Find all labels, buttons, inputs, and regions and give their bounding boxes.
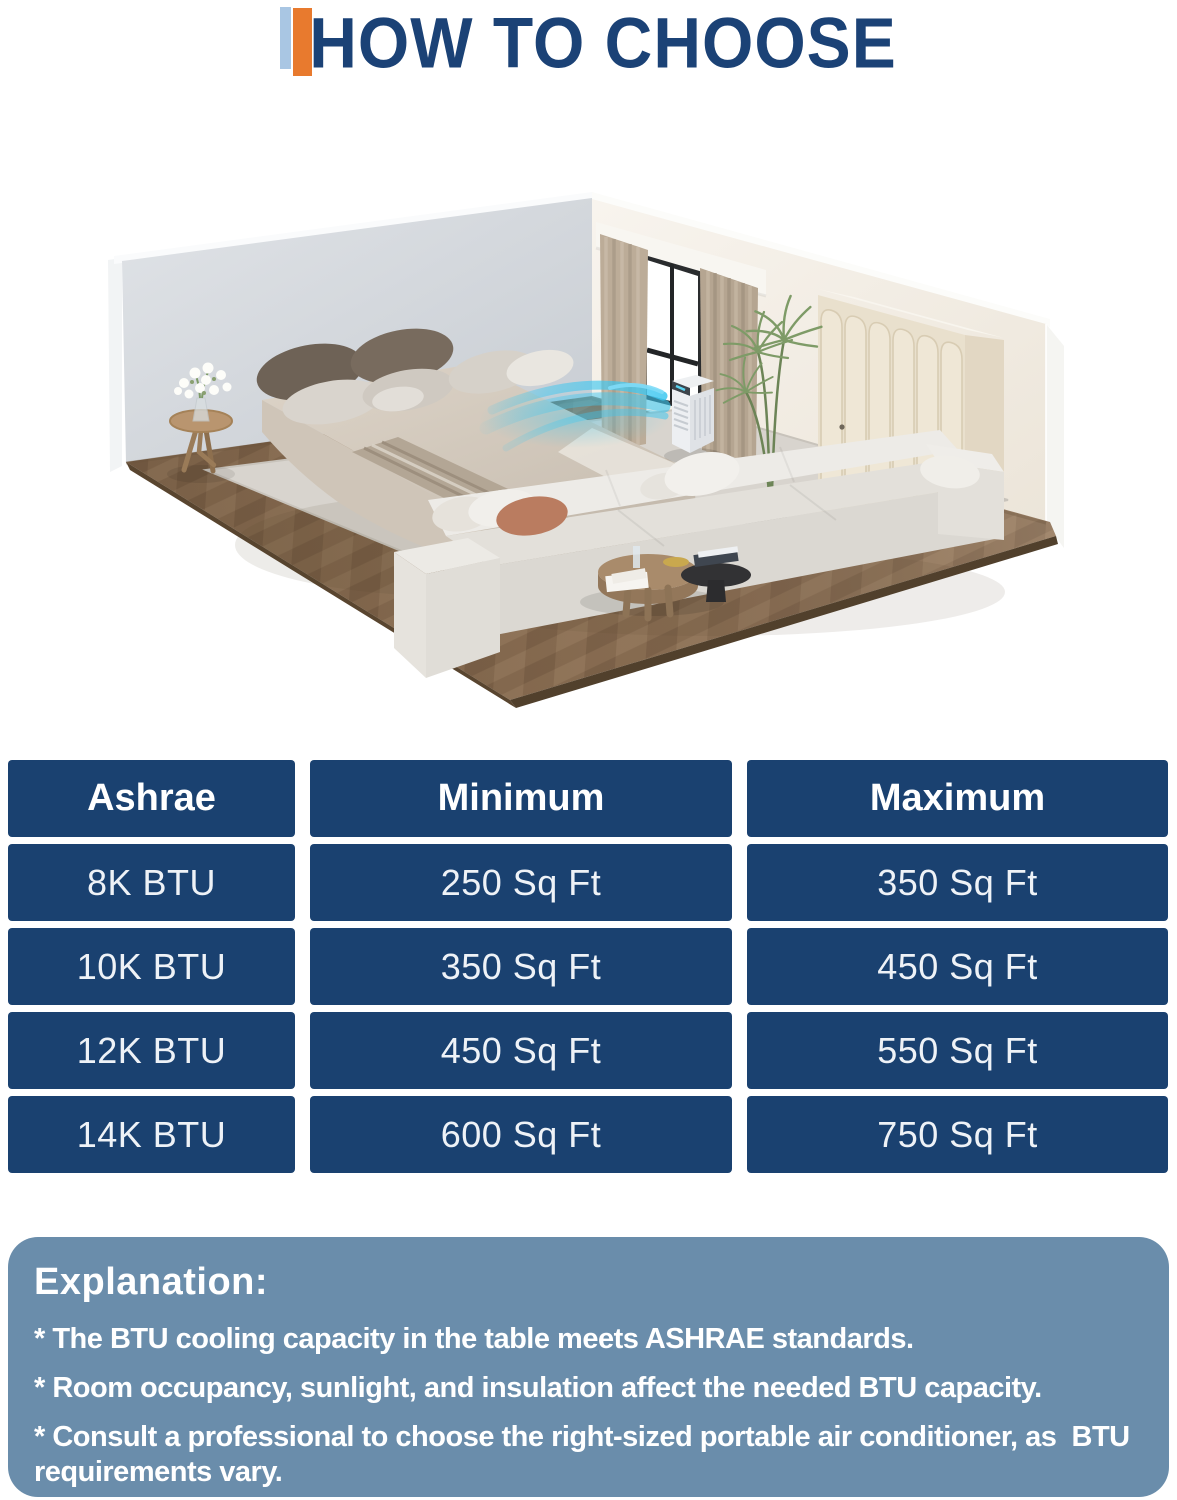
explanation-bullet: * Room occupancy, sunlight, and insulati… bbox=[34, 1371, 1143, 1406]
table-cell-min-8k: 250 Sq Ft bbox=[310, 844, 732, 921]
table-header-ashrae: Ashrae bbox=[8, 760, 295, 837]
table-cell-max-8k: 350 Sq Ft bbox=[747, 844, 1168, 921]
table-cell-min-14k: 600 Sq Ft bbox=[310, 1096, 732, 1173]
table-header-minimum: Minimum bbox=[310, 760, 732, 837]
explanation-bullet: * Consult a professional to choose the r… bbox=[34, 1420, 1143, 1490]
page: HOW TO CHOOSE bbox=[0, 0, 1177, 1500]
table-cell-btu-10k: 10K BTU bbox=[8, 928, 295, 1005]
room-illustration bbox=[0, 185, 1177, 720]
explanation-panel: Explanation: * The BTU cooling capacity … bbox=[8, 1237, 1169, 1497]
explanation-bullet: * The BTU cooling capacity in the table … bbox=[34, 1322, 1143, 1357]
table-cell-btu-14k: 14K BTU bbox=[8, 1096, 295, 1173]
table-cell-min-10k: 350 Sq Ft bbox=[310, 928, 732, 1005]
accent-bar-blue-icon bbox=[280, 7, 291, 69]
table-cell-max-12k: 550 Sq Ft bbox=[747, 1012, 1168, 1089]
table-cell-btu-12k: 12K BTU bbox=[8, 1012, 295, 1089]
table-header-maximum: Maximum bbox=[747, 760, 1168, 837]
page-header: HOW TO CHOOSE bbox=[0, 4, 1177, 76]
table-cell-min-12k: 450 Sq Ft bbox=[310, 1012, 732, 1089]
table-cell-max-10k: 450 Sq Ft bbox=[747, 928, 1168, 1005]
sofa-arm-left bbox=[394, 538, 500, 678]
table-cell-max-14k: 750 Sq Ft bbox=[747, 1096, 1168, 1173]
explanation-heading: Explanation: bbox=[34, 1261, 1143, 1304]
page-title: HOW TO CHOOSE bbox=[309, 4, 896, 82]
btu-sizing-table: Ashrae Minimum Maximum 8K BTU 250 Sq Ft … bbox=[8, 760, 1169, 1173]
table-cell-btu-8k: 8K BTU bbox=[8, 844, 295, 921]
